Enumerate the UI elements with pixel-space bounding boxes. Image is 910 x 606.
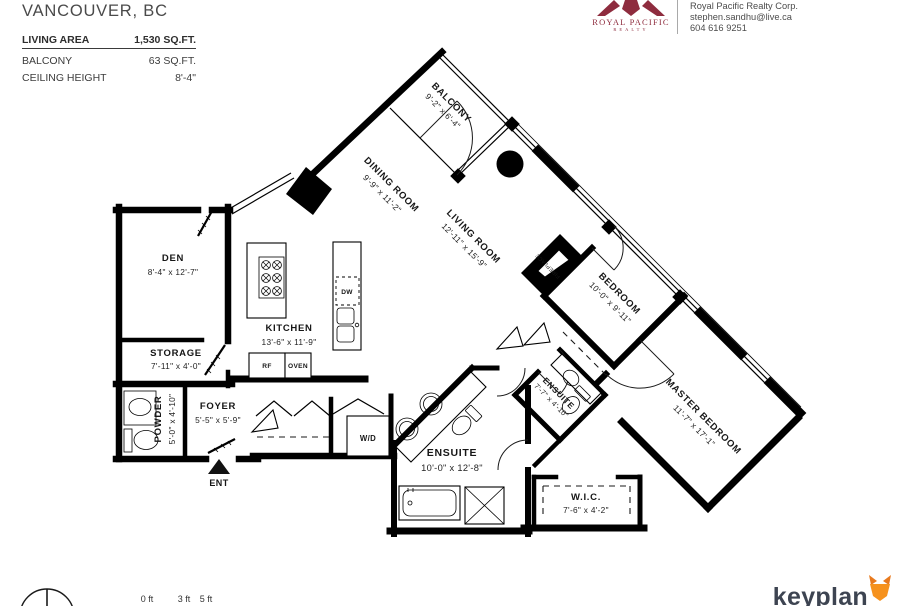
entry-label: ENT: [209, 478, 228, 488]
floor-plan: FIREPLACE: [0, 0, 910, 606]
room-label-den: DEN 8'-4" x 12'-7": [148, 253, 199, 277]
svg-text:DEN: DEN: [162, 253, 184, 264]
room-label-foyer: FOYER 5'-5" x 5'-9": [195, 401, 241, 425]
svg-text:5'-0" x 4'-10": 5'-0" x 4'-10": [167, 394, 177, 445]
washer-dryer-label: W/D: [360, 434, 376, 443]
fridge-label: RF: [262, 363, 271, 370]
scale-tick: 5 ft: [200, 594, 213, 604]
room-label-ensuite-main: ENSUITE 10'-0" x 12'-8": [421, 447, 483, 473]
keyplan-wordmark: keyplan: [773, 583, 868, 606]
bedroom-door-leaf: [592, 248, 614, 270]
svg-text:13'-6" x 11'-9": 13'-6" x 11'-9": [262, 337, 317, 347]
room-label-living: LIVING ROOM 12'-11" x 15'-9": [436, 208, 503, 275]
svg-text:STORAGE: STORAGE: [150, 348, 202, 359]
room-label-wic: W.I.C. 7'-6" x 4'-2": [563, 492, 609, 515]
storage-door-leaf: [205, 345, 225, 375]
room-label-master: MASTER BEDROOM 11'-7" x 17'-1": [655, 377, 744, 466]
svg-text:10'-0" x 12'-8": 10'-0" x 12'-8": [421, 463, 483, 473]
kitchen-fixtures: DW RF OVEN: [247, 242, 361, 378]
wd-bifold-door: [333, 399, 384, 414]
room-label-kitchen: KITCHEN 13'-6" x 11'-9": [262, 323, 317, 347]
svg-text:7'-11" x 4'-0": 7'-11" x 4'-0": [151, 361, 201, 371]
room-label-storage: STORAGE 7'-11" x 4'-0": [150, 348, 202, 371]
svg-text:5'-5" x 5'-9": 5'-5" x 5'-9": [195, 415, 241, 425]
entry-door-leaf: [208, 439, 235, 453]
svg-text:MASTER BEDROOM: MASTER BEDROOM: [663, 377, 743, 457]
svg-text:POWDER: POWDER: [153, 396, 164, 443]
scale-tick: 0 ft: [141, 594, 154, 604]
fireplace: FIREPLACE: [521, 234, 583, 296]
master-door-leaf: [640, 340, 674, 374]
svg-text:ENSUITE: ENSUITE: [427, 447, 477, 459]
room-label-powder: POWDER: [153, 396, 164, 443]
scale-bar: 0 ft 3 ft 5 ft: [141, 594, 213, 604]
powder-toilet-tank: [124, 429, 132, 452]
keyplan-logo: keyplan: [773, 575, 891, 606]
dishwasher-label: DW: [341, 289, 353, 296]
bifold-door: [294, 401, 330, 416]
ensuite-main-door-arc: [498, 440, 528, 470]
foyer-door-leaf: [252, 410, 278, 432]
room-label-dining: DINING ROOM 9'-9" x 11'-2": [353, 155, 421, 223]
den-door-leaf: [198, 211, 212, 236]
svg-text:W.I.C.: W.I.C.: [571, 492, 601, 503]
svg-text:8'-4" x 12'-7": 8'-4" x 12'-7": [148, 267, 199, 277]
svg-text:KITCHEN: KITCHEN: [265, 323, 312, 334]
structural-column: [497, 151, 524, 178]
fox-icon: [869, 575, 891, 601]
room-label-balcony: BALCONY 9'-2" x 6'-4": [421, 81, 473, 133]
room-label-bedroom: BEDROOM 10'-0" x 9'-11": [587, 271, 642, 326]
living-double-door-leaf: [524, 323, 550, 345]
room-label-powder-dims: 5'-0" x 4'-10": [167, 394, 177, 445]
svg-text:FOYER: FOYER: [200, 401, 236, 412]
powder-sink: [129, 399, 151, 416]
entry-arrow: [208, 459, 230, 474]
scale-tick: 3 ft: [178, 594, 191, 604]
compass: [20, 589, 74, 606]
svg-text:7'-6" x 4'-2": 7'-6" x 4'-2": [563, 505, 609, 515]
living-double-door-leaf: [497, 327, 523, 349]
oven-label: OVEN: [288, 363, 308, 370]
master-door-arc: [606, 374, 674, 388]
